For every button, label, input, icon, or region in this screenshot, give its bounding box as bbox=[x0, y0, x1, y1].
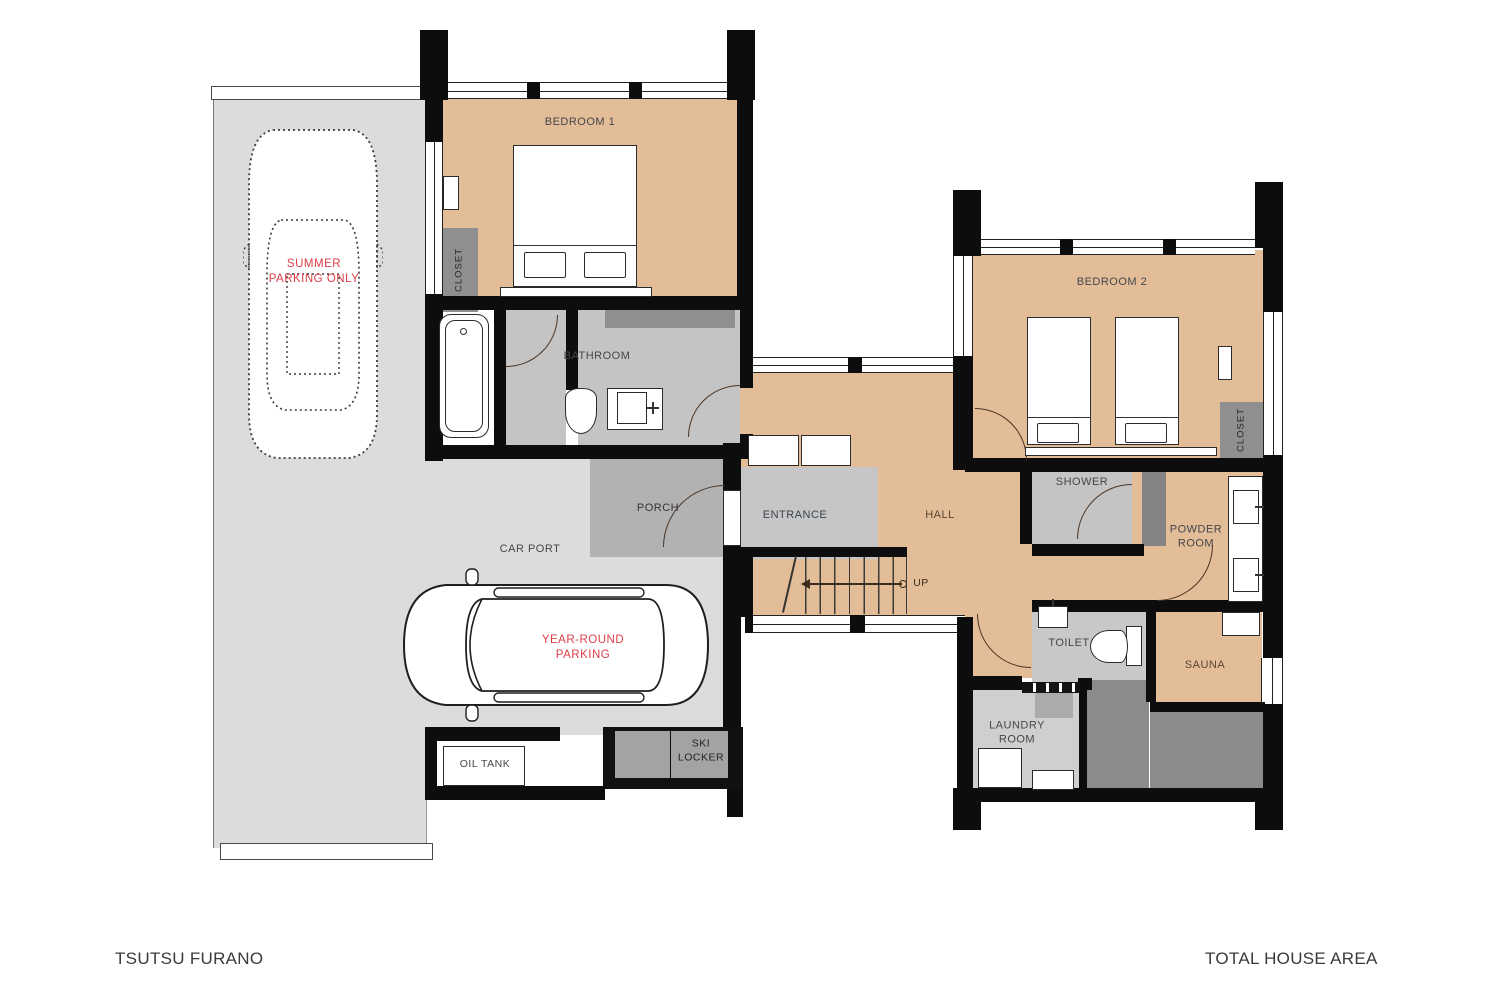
pillow bbox=[1125, 423, 1167, 443]
wall-segment bbox=[1255, 182, 1283, 248]
shoe-cabinet bbox=[748, 435, 799, 466]
wall-segment bbox=[494, 310, 506, 445]
year-round-parking-label: YEAR-ROUND PARKING bbox=[542, 633, 624, 663]
plan-title: TSUTSU FURANO FIRST FLOOR bbox=[115, 922, 263, 1000]
wall-segment bbox=[723, 443, 741, 490]
shower-side-slab bbox=[1142, 470, 1166, 546]
bed-bench bbox=[1025, 447, 1217, 456]
wall-nib bbox=[1218, 346, 1232, 380]
entrance-label: ENTRANCE bbox=[763, 508, 828, 522]
wall-segment bbox=[961, 676, 1022, 690]
faucet-icon bbox=[1052, 599, 1054, 607]
bed-foot-line bbox=[1115, 417, 1179, 418]
project-name: TSUTSU FURANO bbox=[115, 949, 263, 968]
ski-locker-label: SKI LOCKER bbox=[678, 737, 724, 764]
bedroom1-label: BEDROOM 1 bbox=[545, 115, 616, 129]
toilet-threshold bbox=[1022, 682, 1080, 693]
ski-locker-box-left bbox=[615, 731, 670, 778]
vanity-basin bbox=[617, 392, 647, 424]
shoe-cabinet bbox=[801, 435, 851, 466]
wall-segment bbox=[727, 30, 755, 100]
window-bedroom2-right bbox=[1263, 312, 1283, 455]
bedroom2-label: BEDROOM 2 bbox=[1077, 275, 1148, 289]
faucet-icon bbox=[1255, 574, 1264, 576]
wall-segment bbox=[723, 546, 741, 727]
washer bbox=[978, 748, 1022, 788]
stairs-up-arrow-line bbox=[810, 583, 902, 585]
wall-segment bbox=[425, 786, 605, 800]
parking-curb-top bbox=[211, 86, 425, 100]
porch-label: PORCH bbox=[637, 501, 679, 515]
toilet-tank bbox=[1126, 626, 1142, 666]
pillow bbox=[524, 252, 566, 278]
sauna-bench bbox=[1222, 612, 1260, 636]
toilet-label: TOILET bbox=[1048, 636, 1089, 650]
wall-segment bbox=[1032, 544, 1144, 556]
bed-bench bbox=[500, 287, 652, 297]
window-mullion bbox=[629, 82, 642, 99]
window-mullion bbox=[527, 82, 540, 99]
toilet-sink bbox=[1038, 606, 1068, 628]
pillow bbox=[1037, 423, 1079, 443]
wall-segment bbox=[425, 96, 443, 142]
wall-segment bbox=[953, 356, 973, 470]
wall-segment bbox=[957, 617, 973, 792]
summer-car-dotted bbox=[243, 124, 383, 464]
stairs-up-origin-circle bbox=[899, 580, 907, 588]
staircase bbox=[805, 557, 907, 614]
window-mullion bbox=[850, 615, 865, 633]
wall-segment bbox=[1263, 455, 1283, 658]
faucet-icon bbox=[1255, 506, 1264, 508]
window-bedroom1-left bbox=[425, 142, 443, 294]
front-door-opening bbox=[723, 490, 741, 546]
bed-foot-line bbox=[513, 245, 637, 246]
window-mullion bbox=[1060, 239, 1073, 255]
wall-segment bbox=[1078, 678, 1092, 690]
oil-tank-label: OIL TANK bbox=[460, 758, 511, 772]
stairs-up-label: UP bbox=[913, 577, 929, 591]
wall-segment bbox=[965, 458, 1283, 472]
wall-segment bbox=[1255, 788, 1283, 830]
wall-segment bbox=[1263, 247, 1283, 312]
window-bedroom2-top bbox=[981, 239, 1255, 255]
bathtub-drain bbox=[460, 328, 467, 335]
wall-segment bbox=[741, 547, 907, 557]
window-sauna-right bbox=[1261, 658, 1283, 704]
parking-curb-bottom bbox=[220, 843, 433, 860]
wall-segment bbox=[737, 96, 753, 302]
pillow bbox=[584, 252, 626, 278]
wall-segment bbox=[953, 788, 981, 830]
closet2-label: CLOSET bbox=[1236, 408, 1247, 452]
wall-segment bbox=[1079, 690, 1087, 790]
wall-segment bbox=[965, 788, 1283, 802]
area-label: TOTAL HOUSE AREA bbox=[1205, 949, 1378, 968]
bed-foot-line bbox=[1027, 417, 1091, 418]
wall-segment bbox=[437, 296, 753, 310]
mechanical-area-a bbox=[1087, 680, 1149, 788]
closet1-label: CLOSET bbox=[454, 248, 465, 292]
wall-segment bbox=[727, 789, 743, 817]
carport-label: CAR PORT bbox=[500, 542, 561, 556]
hall-label: HALL bbox=[925, 508, 955, 522]
wall-segment bbox=[741, 547, 753, 617]
window-bedroom1-top bbox=[448, 82, 727, 99]
area-summary: TOTAL HOUSE AREA 168 m² bbox=[1205, 922, 1378, 1000]
faucet-icon bbox=[652, 402, 654, 414]
shower-label: SHOWER bbox=[1056, 475, 1109, 489]
window-bedroom2-left bbox=[953, 256, 973, 356]
window-mullion bbox=[848, 357, 862, 373]
wall-segment bbox=[425, 727, 560, 741]
toilet-bowl bbox=[1090, 630, 1128, 663]
powder-room-label: POWDER ROOM bbox=[1170, 523, 1223, 552]
wall-segment bbox=[1020, 472, 1032, 544]
laundry-box bbox=[1032, 770, 1074, 790]
laundry-room-label: LAUNDRY ROOM bbox=[989, 719, 1045, 748]
floor-plan: UP bbox=[0, 0, 1500, 1000]
summer-parking-label: SUMMER PARKING ONLY bbox=[269, 257, 360, 287]
bathroom-label: BATHROOM bbox=[564, 349, 631, 363]
toilet-bathroom bbox=[565, 388, 597, 434]
wall-segment bbox=[1150, 702, 1265, 712]
wall-segment bbox=[953, 190, 981, 256]
bathtub-inner bbox=[445, 320, 483, 432]
wall-segment bbox=[420, 30, 448, 100]
wall-segment bbox=[1146, 612, 1156, 702]
sauna-label: SAUNA bbox=[1185, 658, 1225, 672]
window-mullion bbox=[745, 615, 753, 633]
stairs-up-arrowhead bbox=[801, 579, 810, 589]
wall-segment bbox=[740, 302, 753, 388]
mechanical-area-b bbox=[1150, 712, 1263, 788]
wall-segment bbox=[425, 445, 753, 459]
wall-nib bbox=[443, 176, 459, 210]
window-mullion bbox=[1163, 239, 1176, 255]
